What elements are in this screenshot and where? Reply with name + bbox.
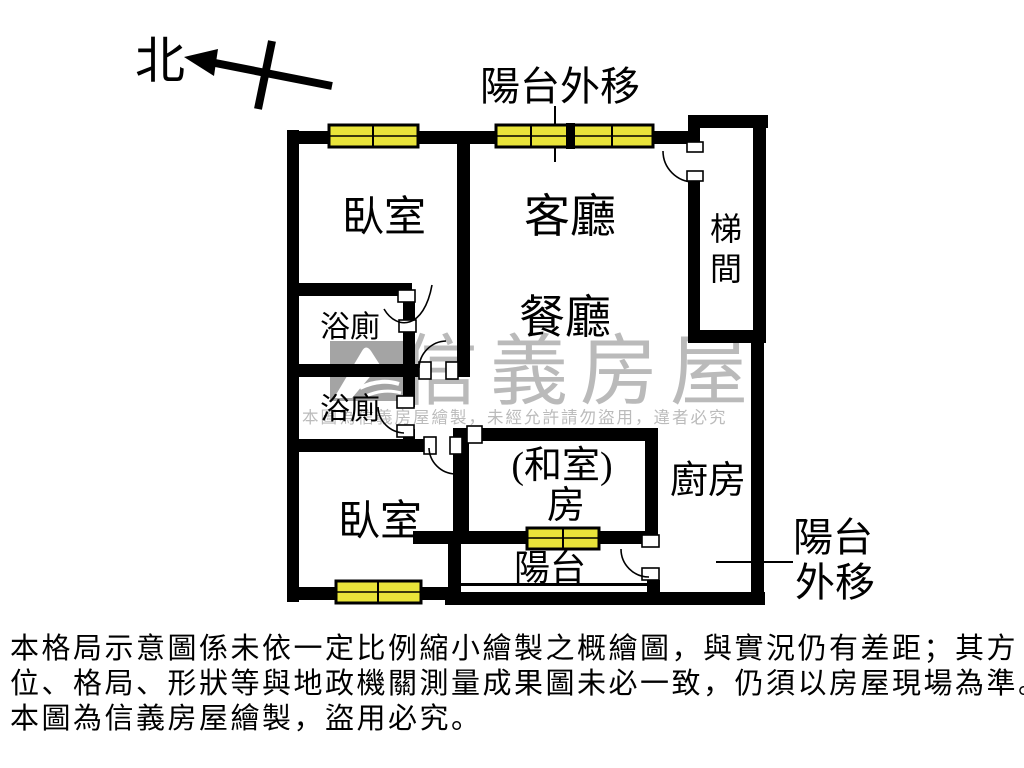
wall-central-vertical [457, 131, 470, 377]
jamb-kitchen-door-lower [642, 568, 659, 580]
jamb-bath2-door-lower [397, 425, 414, 437]
wall-right-outer [751, 330, 764, 604]
window-living [496, 123, 653, 149]
wall-stair-right [753, 115, 766, 343]
jamb-stair-door-lower [687, 171, 703, 181]
jamb-dining-door-left [419, 362, 431, 379]
disclaimer-line-2: 位、格局、形狀等與地政機關測量成果圖未必一致，仍須以房屋現場為準。 [10, 667, 1024, 700]
window-bedroom1 [329, 125, 418, 147]
jamb-bedroom1-door [398, 290, 415, 302]
north-label: 北 [135, 33, 185, 89]
window-bedroom2 [336, 581, 421, 603]
label-bedroom-top: 臥室 [342, 194, 426, 241]
wall-tatami-top [464, 428, 658, 441]
label-tatami-1: (和室) [511, 445, 612, 487]
label-dining-room: 餐廳 [519, 292, 611, 343]
disclaimer: 本格局示意圖係未依一定比例縮小繪製之概繪圖，與實況仍有差距；其方 位、格局、形狀… [10, 632, 1024, 735]
wall-kitchen-left [645, 428, 658, 538]
jamb-bedroom2-door-right [450, 437, 462, 454]
label-tatami-2: 房 [547, 485, 585, 527]
balcony-out-top-label: 陽台外移 [480, 64, 640, 109]
label-bathroom-top: 浴廁 [320, 311, 380, 344]
label-kitchen: 廚房 [670, 460, 746, 502]
north-arrow-head [184, 49, 218, 76]
label-bathroom-bottom: 浴廁 [320, 393, 380, 426]
wall-bedroom2-top [287, 439, 426, 452]
balcony-out-right-label-2: 外移 [795, 560, 875, 605]
floor-plan-page: 北 陽台外移 陽台 外移 信義房屋 本圖為信義房屋繪製，未經允許請勿盜用，違者必… [0, 0, 1024, 768]
jamb-kitchen-door-upper [642, 535, 659, 547]
jamb-dining-door-right [446, 362, 458, 379]
wall-bedroom1-bottom [287, 283, 412, 296]
jamb-bath2-door-upper [397, 396, 414, 408]
label-living-room: 客廳 [524, 191, 616, 242]
wall-bath-mid [287, 364, 430, 377]
label-stairwell-2: 間 [710, 251, 742, 287]
balcony-out-right-label-1: 陽台 [793, 515, 873, 560]
label-balcony: 陽台 [514, 548, 586, 588]
wall-stair-left [688, 177, 700, 343]
window-balcony [527, 528, 599, 549]
label-stairwell-1: 梯 [710, 211, 742, 247]
floor-plan: 北 陽台外移 陽台 外移 信義房屋 本圖為信義房屋繪製，未經允許請勿盜用，違者必… [0, 0, 1024, 768]
label-bedroom-bottom: 臥室 [338, 498, 422, 545]
disclaimer-line-1: 本格局示意圖係未依一定比例縮小繪製之概繪圖，與實況仍有差距；其方 [10, 632, 1018, 665]
disclaimer-line-3: 本圖為信義房屋繪製，盜用必究。 [10, 702, 483, 735]
wall-bottom-outer [445, 592, 765, 605]
jamb-stair-door-upper [687, 142, 703, 152]
north-compass: 北 [135, 33, 332, 109]
jamb-tatami-door [467, 426, 482, 443]
